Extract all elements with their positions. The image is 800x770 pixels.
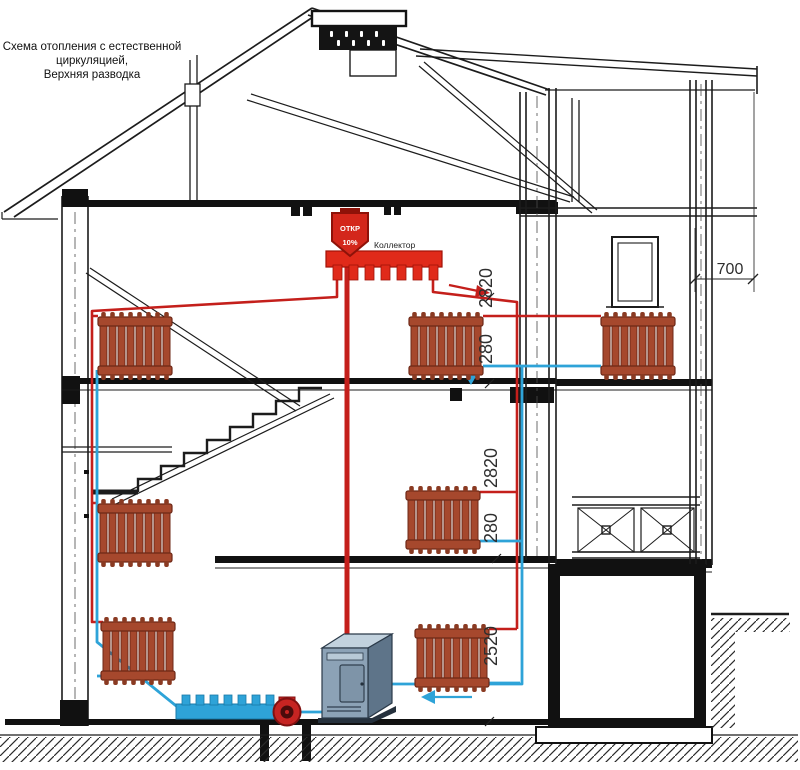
dim-roof-overhang: 700	[717, 261, 744, 278]
supply-collector	[326, 251, 442, 280]
expansion-tank: ОТКР 10%	[332, 208, 368, 256]
expansion-tank-label-bottom: 10%	[342, 238, 357, 247]
staircase	[62, 268, 334, 504]
title-line-2: циркуляцией,	[56, 55, 128, 67]
radiator-ground-center	[415, 624, 489, 692]
chimney	[312, 11, 406, 76]
lower-right-room	[548, 564, 706, 730]
dim-roof-overhang-group: 700	[690, 92, 758, 292]
dim-middle-floor-height: 2820	[481, 448, 501, 488]
return-arrow-left	[421, 690, 435, 704]
house-structure	[0, 8, 798, 762]
dim-middle-floor-drop: 280	[481, 513, 501, 543]
collector-label: Коллектор	[374, 240, 415, 250]
radiator-top-middle	[409, 312, 483, 380]
boiler	[318, 634, 396, 723]
radiator-middle-center	[406, 486, 480, 554]
title-line-3: Верхняя разводка	[44, 69, 141, 81]
window	[606, 237, 664, 307]
balcony-railing	[572, 497, 700, 558]
circulation-pump	[274, 697, 301, 726]
boiler-door	[340, 665, 364, 702]
dim-top-floor-height: 2820	[476, 268, 496, 308]
roof-truss	[185, 55, 597, 213]
left-wall	[60, 189, 89, 726]
dim-ground-floor-height: 2520	[481, 626, 501, 666]
radiator-top-right	[601, 312, 675, 380]
heating-scheme-diagram: ОТКР 10% Коллектор	[0, 0, 800, 770]
expansion-tank-label-top: ОТКР	[340, 224, 360, 233]
title-line-1: Схема отопления с естественной	[3, 41, 182, 53]
radiator-top-left	[98, 312, 172, 380]
radiator-ground-left	[101, 617, 175, 685]
radiator-middle-left	[98, 499, 172, 567]
return-collector	[176, 695, 274, 719]
dim-top-floor-drop: 280	[476, 334, 496, 364]
